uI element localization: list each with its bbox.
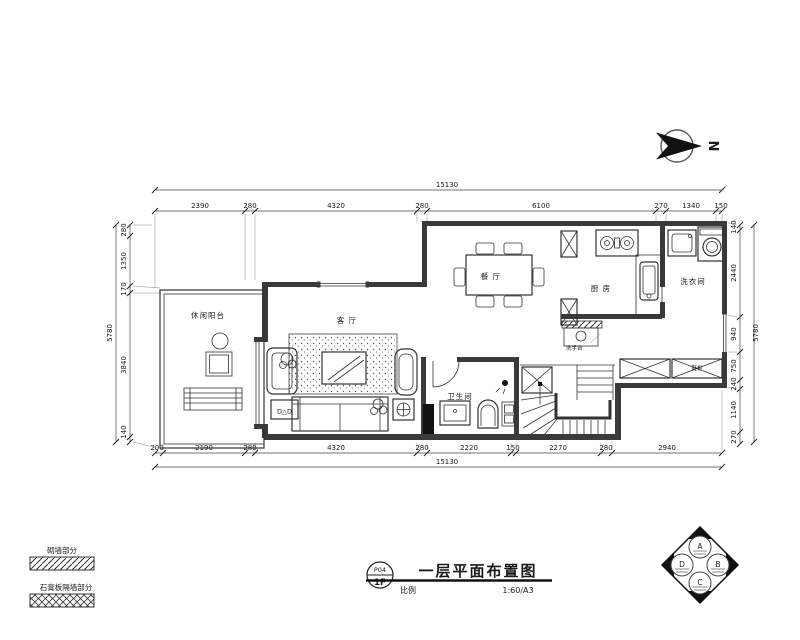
dim-bottom-9: 2940 [658, 444, 676, 452]
dim-total-width-top: 15130 [436, 181, 458, 189]
shoe-cabinet: 鞋柜 [620, 359, 722, 378]
floor-plan-drawing: N 15130 2390 280 4320 280 6100 270 1340 … [0, 0, 800, 640]
balcony-label: 休闲阳台 [191, 310, 225, 320]
logo-letter-bottom: C [697, 578, 702, 587]
logo-letter-top: A [697, 542, 703, 551]
room-living: 客 厅 D△D [267, 315, 417, 431]
living-lounge-right [395, 349, 417, 395]
laundry-washer [698, 227, 726, 261]
dimension-top: 15130 2390 280 4320 280 6100 270 1340 15… [152, 181, 728, 288]
dvd-label: D△D [277, 408, 292, 416]
dim-bottom-8: 280 [599, 444, 612, 452]
company-logo: A B C D [662, 527, 738, 603]
dim-right-4: 240 [730, 377, 738, 390]
living-label: 客 厅 [337, 315, 357, 325]
kitchen-pass-basin: 洗手台 [562, 321, 602, 352]
dimension-right: 140 2440 940 750 240 1140 270 5780 [728, 220, 760, 447]
kitchen-label: 厨 房 [591, 283, 611, 293]
kitchen-sink [636, 255, 662, 315]
dim-top-5: 270 [654, 202, 667, 210]
dim-top-0: 2390 [191, 202, 209, 210]
living-plant-right [371, 399, 388, 415]
dim-right-3: 750 [730, 359, 738, 372]
bathroom-toilet [478, 400, 498, 428]
drawing-title: 一层平面布置图 [418, 562, 537, 580]
living-coffee-table [322, 352, 366, 384]
scale-label: 比例 [400, 585, 416, 595]
room-balcony: 休闲阳台 [160, 290, 264, 448]
dim-left-1: 1350 [120, 252, 128, 270]
balcony-stool [206, 352, 232, 376]
bathroom-washbasin [440, 401, 470, 425]
dim-left-0: 280 [120, 223, 128, 236]
dim-right-0: 140 [730, 220, 738, 233]
bathroom-shelf [502, 402, 516, 426]
dim-bottom-5: 2220 [460, 444, 478, 452]
dim-total-width-bottom: 15130 [436, 458, 458, 466]
staircase [520, 365, 615, 434]
north-arrow-icon: N [656, 130, 720, 162]
sheet-number: P04 [374, 566, 386, 574]
dim-top-2: 4320 [327, 202, 345, 210]
dim-top-1: 280 [243, 202, 256, 210]
dim-right-2: 940 [730, 327, 738, 340]
balcony-bench [184, 388, 242, 410]
dim-right-5: 1140 [730, 401, 738, 419]
dim-top-7: 150 [714, 202, 727, 210]
dining-label: 餐 厅 [481, 272, 501, 281]
logo-letter-left: D [679, 560, 685, 569]
balcony-round-table [212, 333, 228, 349]
dim-top-3: 280 [415, 202, 428, 210]
legend-partition-swatch [30, 594, 94, 607]
dimension-bottom: 200 2190 280 4320 280 2220 150 2270 280 … [150, 390, 725, 470]
legend-partition-label: 石膏板隔墙部分 [40, 582, 93, 592]
bathroom-door-arc [433, 361, 459, 387]
shoe-cabinet-label: 鞋柜 [691, 364, 703, 372]
dim-right-6: 270 [730, 430, 738, 443]
room-dining: 餐 厅 [454, 243, 544, 307]
bathroom-label: 卫生间 [447, 391, 473, 401]
dim-left-4: 140 [120, 425, 128, 438]
basin-note: 洗手台 [566, 344, 583, 352]
dimension-left: 280 1350 170 3840 140 5780 [106, 222, 160, 448]
north-letter: N [705, 141, 720, 152]
scale-value: 1:60/A3 [502, 586, 533, 595]
kitchen-stove [596, 230, 638, 256]
dim-top-6: 1340 [682, 202, 700, 210]
room-kitchen: 厨 房 洗手台 [561, 230, 662, 352]
legend-wall-label: 砌墙部分 [47, 545, 77, 555]
room-laundry: 洗衣间 [668, 227, 726, 286]
room-bathroom: 卫生间 [433, 361, 516, 428]
dim-bottom-6: 150 [506, 444, 519, 452]
stair-column [522, 367, 552, 393]
living-side-table [393, 399, 414, 420]
dim-total-height-left: 5780 [106, 324, 114, 342]
dim-bottom-3: 4320 [327, 444, 345, 452]
legend: 砌墙部分 石膏板隔墙部分 [30, 545, 94, 607]
kitchen-column-top [561, 231, 577, 257]
logo-letter-right: B [715, 560, 720, 569]
floor-plan-sheet: N 15130 2390 280 4320 280 6100 270 1340 … [0, 0, 800, 640]
legend-wall-swatch [30, 557, 94, 570]
bathroom-shower [496, 380, 508, 394]
dim-right-1: 2440 [730, 264, 738, 282]
laundry-sink [668, 230, 696, 256]
dim-left-2: 170 [120, 282, 128, 295]
dim-bottom-4: 280 [415, 444, 428, 452]
dim-left-3: 3840 [120, 356, 128, 374]
walls [262, 221, 727, 440]
title-block: P04 1F 一层平面布置图 比例 1:60/A3 [366, 562, 552, 595]
dim-top-4: 6100 [532, 202, 550, 210]
laundry-label: 洗衣间 [680, 276, 706, 286]
dim-bottom-7: 2270 [549, 444, 567, 452]
dim-total-height-right: 5780 [752, 324, 760, 342]
living-dvd-cabinet: D△D [271, 400, 298, 419]
